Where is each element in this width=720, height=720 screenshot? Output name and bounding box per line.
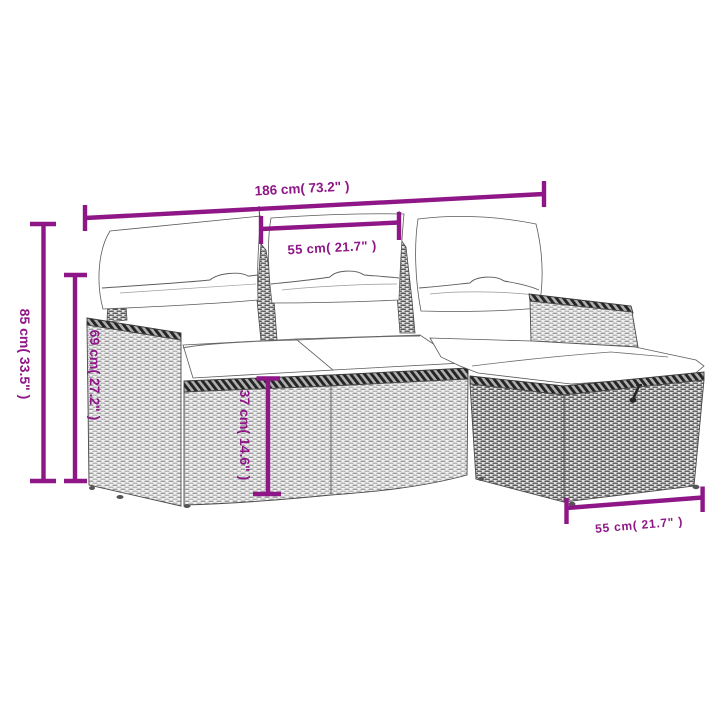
- svg-text:85 cm( 33.5" ): 85 cm( 33.5" ): [17, 309, 33, 400]
- svg-text:69 cm( 27.2" ): 69 cm( 27.2" ): [87, 330, 103, 421]
- svg-text:37 cm( 14.6" ): 37 cm( 14.6" ): [237, 390, 253, 481]
